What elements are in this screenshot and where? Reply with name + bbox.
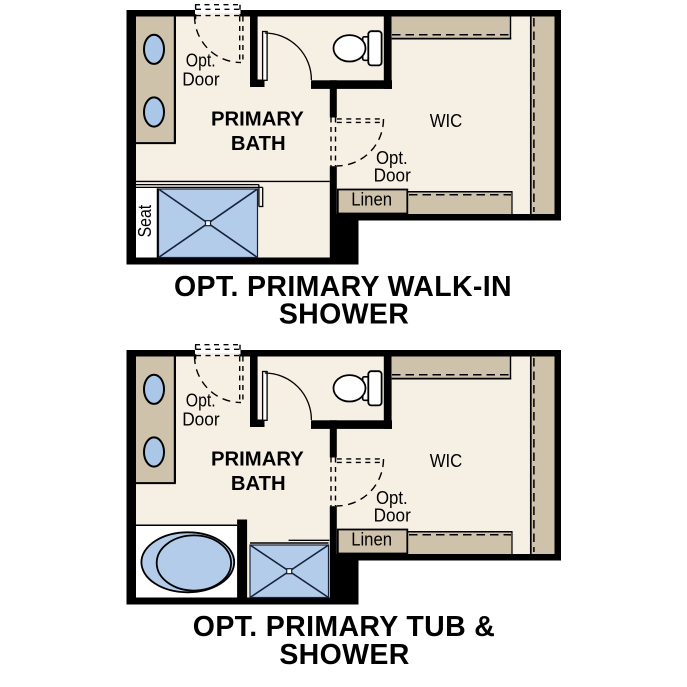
svg-text:WIC: WIC <box>430 110 463 131</box>
svg-text:Linen: Linen <box>351 189 392 210</box>
svg-text:SHOWER: SHOWER <box>279 299 409 331</box>
svg-text:BATH: BATH <box>231 473 286 495</box>
svg-text:BATH: BATH <box>231 133 286 155</box>
svg-text:Door: Door <box>182 68 220 89</box>
svg-text:Opt.: Opt. <box>186 390 216 411</box>
svg-text:Door: Door <box>374 165 411 186</box>
svg-text:PRIMARY: PRIMARY <box>211 449 304 471</box>
svg-text:OPT. PRIMARY TUB &: OPT. PRIMARY TUB & <box>193 611 495 643</box>
svg-text:WIC: WIC <box>430 450 463 471</box>
svg-text:Linen: Linen <box>351 529 392 550</box>
svg-text:Seat: Seat <box>134 205 155 238</box>
svg-text:Door: Door <box>374 505 411 526</box>
svg-text:Door: Door <box>182 408 220 429</box>
svg-text:Opt.: Opt. <box>186 50 216 71</box>
svg-text:SHOWER: SHOWER <box>279 639 409 671</box>
svg-text:PRIMARY: PRIMARY <box>211 109 304 131</box>
